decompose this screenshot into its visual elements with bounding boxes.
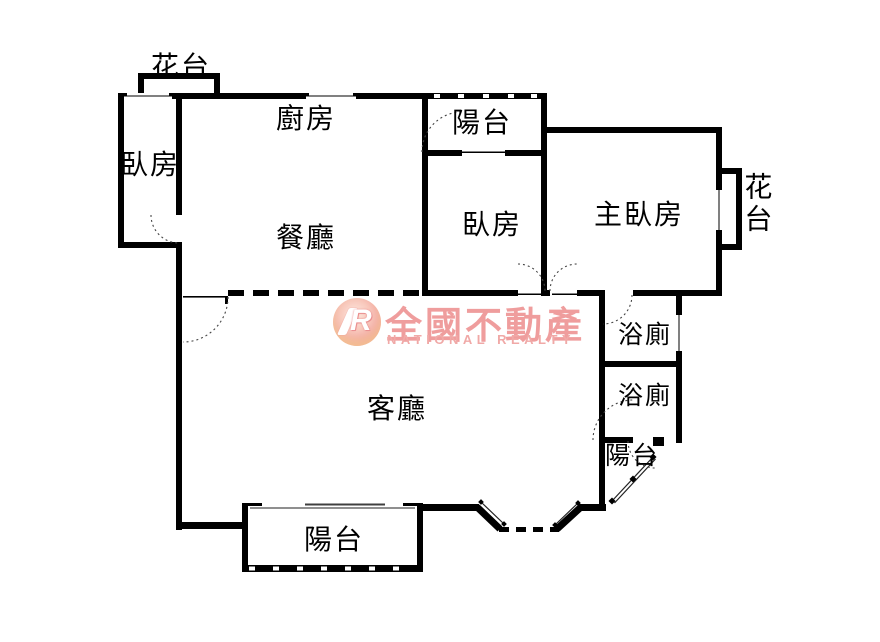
wall-bay-chamfer-right [557, 507, 581, 529]
window-tick-white [297, 567, 303, 571]
logo-letter: R [350, 305, 372, 337]
window-tick [353, 93, 356, 96]
window-tick-white [249, 567, 255, 571]
window-tick-white [483, 94, 489, 98]
sliding-door-cap [242, 503, 262, 506]
wall-bath2-east [676, 367, 682, 443]
room-label-dining: 餐廳 [276, 223, 336, 252]
door-arc-master [550, 264, 577, 291]
wall-master-east-lower [716, 232, 722, 296]
room-label-bedroom-middle: 臥房 [462, 210, 522, 239]
wall-bedroom-mid-east [541, 93, 547, 296]
wall-flowerright-bottom [716, 244, 742, 250]
window-tick [716, 188, 722, 190]
room-label-kitchen: 廚房 [276, 104, 336, 133]
window-tick-white [458, 94, 464, 98]
window-tick [169, 93, 172, 96]
wall-bath1-bottom [599, 361, 682, 367]
wall-bedroom-left-bottom [118, 242, 182, 248]
wall-flowerbox-left [138, 73, 144, 93]
room-label-master-bedroom: 主臥房 [594, 200, 684, 229]
wall-living-west [176, 242, 182, 530]
room-label-bathroom-2: 浴廁 [618, 383, 672, 409]
sliding-door-rail [250, 507, 415, 509]
window-tick-white [273, 567, 279, 571]
room-label-living-room: 客廳 [367, 394, 427, 423]
sliding-door-cap [403, 503, 423, 506]
window-tick [306, 93, 309, 96]
window-tick [716, 230, 722, 232]
wall-bedroom-mid-west [422, 93, 428, 296]
sliding-door-panel [305, 504, 385, 506]
window-line-master [718, 189, 719, 232]
window-line [678, 314, 679, 352]
room-label-balcony-right: 陽台 [605, 443, 659, 469]
room-label-bedroom-left: 臥房 [120, 150, 180, 179]
room-label-flower-top-left: 花台 [151, 52, 211, 81]
room-label-flower-right: 花台 [742, 172, 771, 236]
window-tick [676, 313, 682, 315]
wall-bay-chamfer-left [477, 507, 500, 529]
window-line [124, 95, 172, 96]
wall-balcony-top-bottom-b [508, 150, 547, 156]
door-jamb [505, 150, 508, 156]
door-jamb [459, 150, 462, 156]
window-tick-white [434, 94, 440, 98]
wall-balcony-bottom-west [242, 503, 248, 572]
window-line [306, 95, 356, 96]
window-tick-white [321, 567, 327, 571]
wall-master-top [541, 127, 722, 133]
door-arc-bedroom-middle [518, 264, 545, 291]
room-label-balcony-top: 陽台 [452, 108, 512, 137]
window-tick-white [345, 567, 351, 571]
wall-living-bottom-mid [417, 504, 479, 511]
window-tick-white [369, 567, 375, 571]
brand-name-en: NATIONAL REALTY [387, 332, 575, 347]
realty-watermark: R 全國不動產 NATIONAL REALTY [330, 295, 660, 357]
wall-living-bottom-left [176, 522, 248, 529]
window-tick-white [531, 94, 537, 98]
wall-master-east-upper [716, 127, 722, 189]
window-tick [676, 351, 682, 353]
door-arc-bedroom-left [151, 215, 179, 243]
window-tick-white [393, 567, 399, 571]
wall-balcony-top-bottom-a [422, 150, 459, 156]
door-leaf-entrance [183, 296, 228, 298]
floorplan-canvas: 花台 臥房 廚房 餐廳 陽台 臥房 主臥房 花台 浴廁 浴廁 陽台 客廳 陽台 … [0, 0, 880, 642]
window-tick-white [508, 94, 514, 98]
door-arc-entrance [183, 297, 228, 342]
wall-flowerbox-right [214, 73, 220, 93]
wall-balcony-bottom-east [417, 503, 423, 572]
window-tick [124, 93, 127, 96]
realty-logo-badge-icon: R [333, 298, 381, 346]
room-label-balcony-bottom: 陽台 [304, 525, 364, 554]
door-leaf [462, 152, 505, 154]
